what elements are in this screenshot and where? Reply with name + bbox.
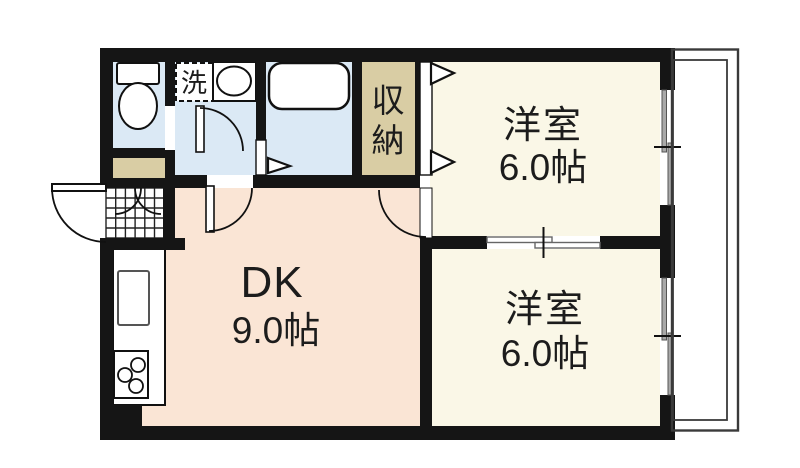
room-bottom-size: 6.0帖 bbox=[501, 333, 589, 374]
storage-label-char2: 納 bbox=[372, 122, 405, 159]
room-bottom-label: 洋室 bbox=[505, 289, 585, 331]
floorplan-image: 洋室 6.0帖 洋室 6.0帖 DK 9.0帖 収 納 洗 bbox=[0, 0, 800, 468]
genkan-tile bbox=[106, 188, 164, 238]
balcony bbox=[672, 50, 738, 431]
entry-door bbox=[52, 184, 106, 242]
stove bbox=[114, 351, 148, 398]
room-top-size: 6.0帖 bbox=[499, 147, 587, 188]
dk-label: DK bbox=[240, 258, 303, 307]
storage-label-char1: 収 bbox=[372, 82, 405, 119]
room-top-label: 洋室 bbox=[503, 105, 583, 147]
bathroom-door-opening bbox=[256, 140, 266, 175]
kitchen-counter bbox=[113, 248, 165, 405]
floorplan-svg: 洋室 6.0帖 洋室 6.0帖 DK 9.0帖 収 納 洗 bbox=[0, 0, 800, 468]
wash-basin bbox=[213, 62, 256, 101]
storage-closet-floor bbox=[362, 62, 415, 177]
laundry-label: 洗 bbox=[181, 68, 207, 98]
kitchen-sink bbox=[118, 271, 149, 325]
shoe-cabinet bbox=[113, 158, 165, 178]
bathtub bbox=[269, 63, 349, 109]
dk-room-door-opening bbox=[420, 188, 432, 238]
dk-size: 9.0帖 bbox=[232, 310, 320, 351]
toilet-fixture bbox=[117, 63, 159, 129]
